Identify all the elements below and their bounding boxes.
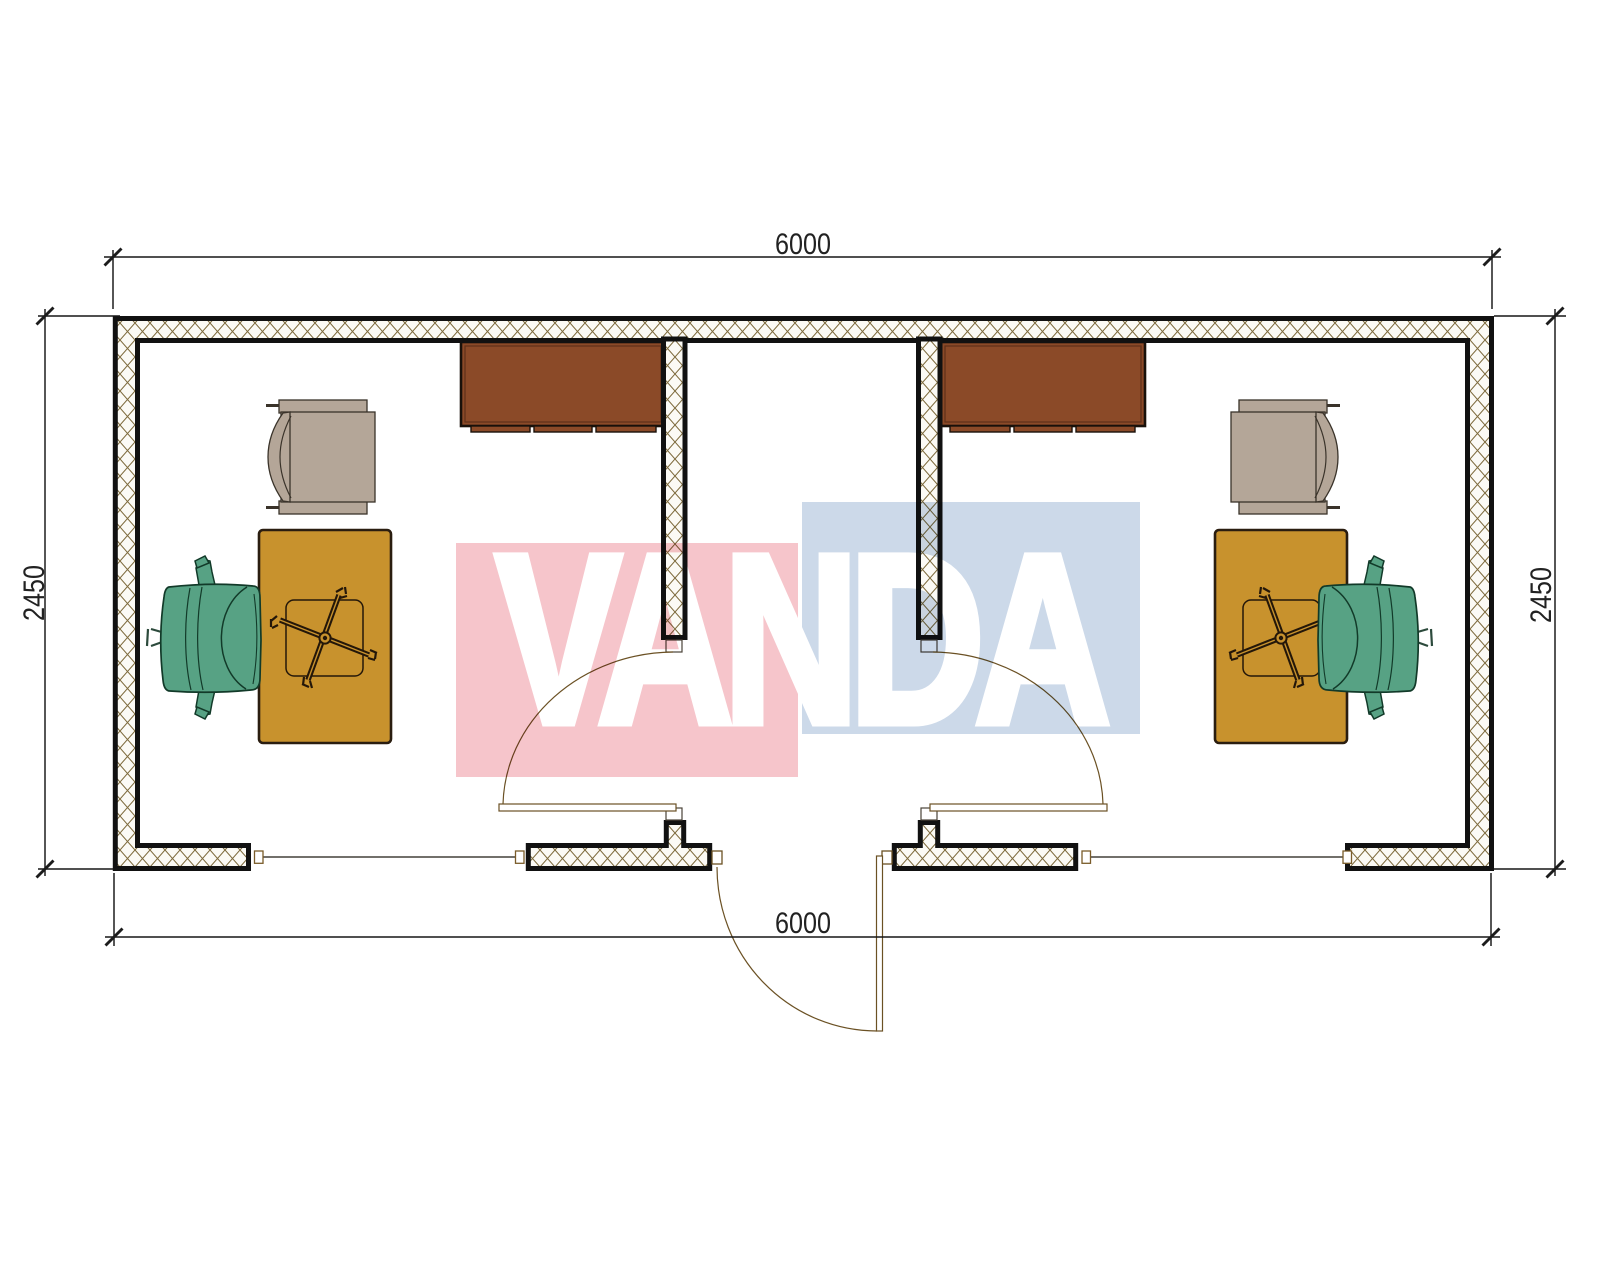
svg-text:VANDA: VANDA <box>496 505 1106 774</box>
